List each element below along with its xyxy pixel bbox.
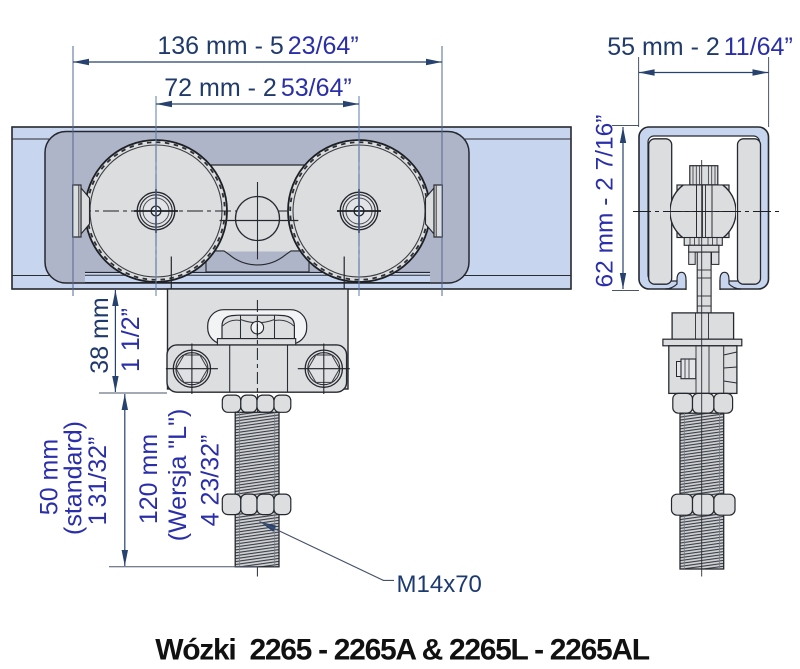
svg-text:38 mm: 38 mm (86, 297, 114, 373)
svg-text:1 1/2”: 1 1/2” (117, 308, 145, 372)
svg-text:72 mm - 253/64”: 72 mm - 253/64” (164, 74, 351, 102)
svg-text:M14x70: M14x70 (397, 571, 482, 598)
svg-text:62 mm - 2 7/16”: 62 mm - 2 7/16” (592, 115, 619, 288)
svg-text:131/32”: 131/32” (84, 437, 112, 526)
svg-text:(Wersja "L"): (Wersja "L") (164, 409, 192, 542)
svg-text:120 mm: 120 mm (135, 434, 163, 524)
svg-text:136 mm - 523/64”: 136 mm - 523/64” (157, 32, 358, 60)
svg-text:Wózki 2265 - 2265A & 2265L -: Wózki 2265 - 2265A & 2265L - 2265AL (155, 634, 649, 667)
svg-text:55 mm - 211/64”: 55 mm - 211/64” (607, 33, 793, 61)
svg-text:4 23/32”: 4 23/32” (197, 435, 225, 527)
